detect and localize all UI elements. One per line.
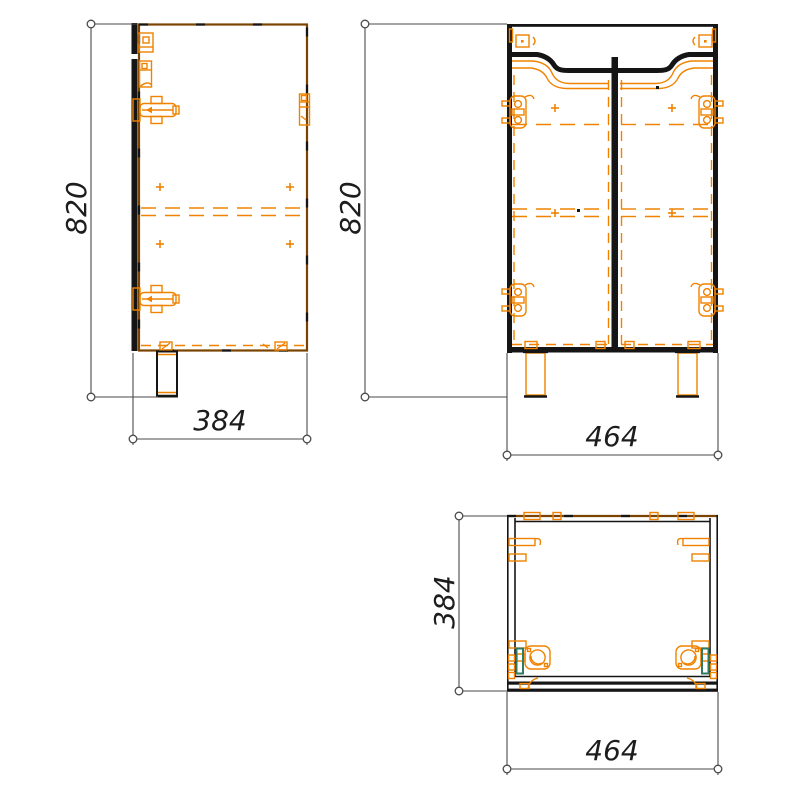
leg-icon	[157, 352, 177, 397]
hinge-side-icon	[133, 286, 179, 313]
circle-terminator-icon	[361, 20, 369, 28]
side-view-dimensions: 820 384	[60, 20, 311, 445]
circle-terminator-icon	[455, 687, 463, 695]
dimension-label: 384	[193, 404, 246, 437]
drill-cross-icon	[551, 104, 559, 112]
drill-cross-icon	[668, 104, 676, 112]
circle-terminator-icon	[714, 765, 722, 773]
hinge-front-icon	[502, 95, 534, 128]
drill-dot	[577, 209, 580, 212]
dimension-label: 464	[585, 734, 638, 767]
leg-icon	[675, 352, 700, 397]
plan-back-edge	[507, 516, 718, 522]
dimension-820-side: 820	[60, 20, 158, 401]
circle-terminator-icon	[87, 393, 95, 401]
cam-lock-fitting	[693, 29, 716, 47]
circle-terminator-icon	[503, 451, 511, 459]
drill-dot	[656, 86, 659, 89]
top-view	[507, 513, 718, 692]
hinge-front-icon	[691, 95, 723, 128]
circle-terminator-icon	[87, 20, 95, 28]
circle-terminator-icon	[503, 765, 511, 773]
bracket-fitting	[140, 61, 152, 87]
center-divider	[612, 57, 619, 352]
dimension-label: 820	[334, 181, 367, 234]
hidden-shelf-lines	[141, 208, 306, 216]
dimension-464-plan: 464	[503, 692, 722, 775]
side-view	[132, 23, 310, 397]
dimension-label: 820	[60, 181, 93, 234]
side-top-rail-edge	[132, 23, 138, 54]
side-wall-fittings	[509, 539, 709, 649]
circle-terminator-icon	[129, 435, 137, 443]
cam-lock-fitting	[510, 29, 536, 47]
circle-terminator-icon	[361, 393, 369, 401]
front-view	[502, 24, 723, 397]
front-top-edge	[507, 24, 718, 27]
drill-cross-icon	[286, 183, 294, 191]
drill-cross-icon	[551, 209, 559, 217]
circle-terminator-icon	[303, 435, 311, 443]
side-carcass-outline	[139, 25, 307, 351]
drill-cross-icon	[156, 240, 164, 248]
top-view-dimensions: 384 464	[428, 512, 722, 775]
dimension-label: 464	[585, 420, 638, 453]
circle-terminator-icon	[714, 451, 722, 459]
hinge-front-icon	[502, 283, 534, 316]
leg-icon	[523, 352, 548, 397]
hinge-front-icon	[691, 283, 723, 316]
dimension-464-front: 464	[503, 353, 722, 461]
hinge-side-icon	[133, 97, 179, 124]
dimension-384-plan: 384	[428, 512, 507, 695]
cam-lock-fitting	[139, 33, 153, 52]
drawing-canvas: 820 384	[0, 0, 800, 800]
circle-terminator-icon	[455, 512, 463, 520]
drill-cross-icon	[286, 240, 294, 248]
plan-front-doors	[507, 677, 718, 692]
dimension-820-front: 820	[334, 20, 507, 401]
hinge-screws	[509, 655, 717, 679]
drill-cross-icon	[156, 183, 164, 191]
dimension-label: 384	[428, 575, 461, 628]
